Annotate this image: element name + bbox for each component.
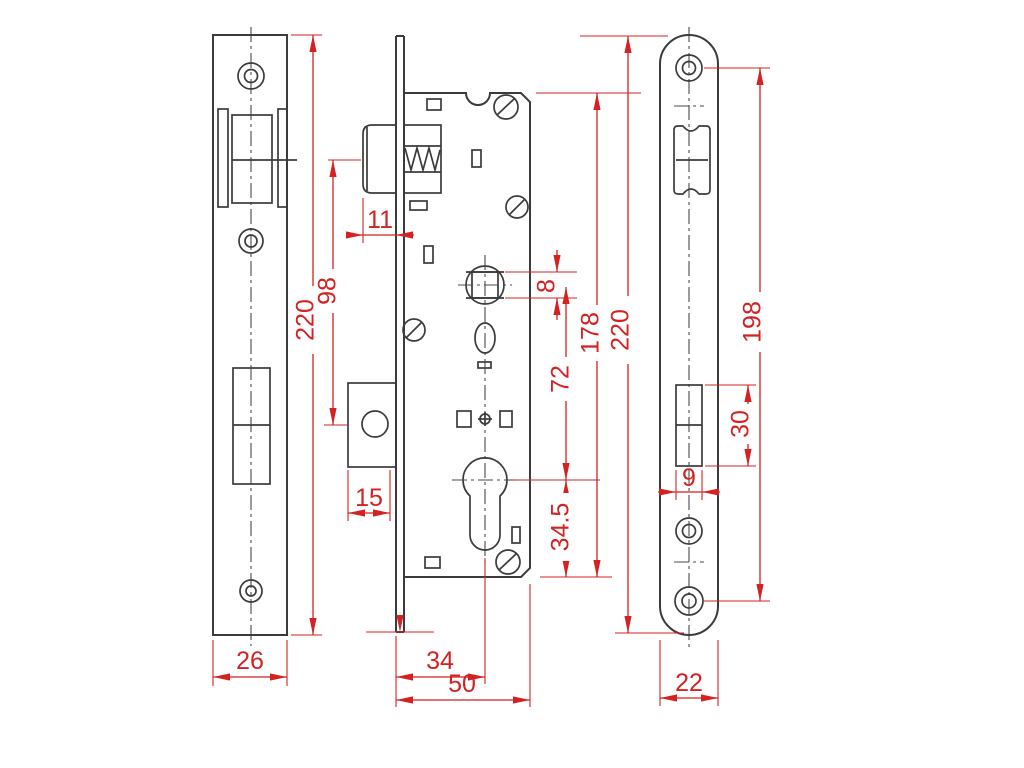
dim-label-34-5: 34.5 — [547, 503, 575, 552]
dim-label-198: 198 — [739, 301, 767, 343]
cutout-mid — [424, 246, 433, 263]
dim-depth: 50 — [396, 584, 530, 707]
dim-label-9: 9 — [682, 464, 696, 492]
dim-strike-height: 220 — [291, 35, 322, 635]
lock-technical-drawing: 220 26 98 — [0, 0, 1024, 768]
deadbolt-pin-hole — [362, 411, 388, 437]
left-notch — [218, 109, 228, 207]
case-screw-left — [403, 319, 425, 341]
cutout-center-right — [500, 411, 512, 427]
dim-label-11: 11 — [367, 206, 393, 234]
dim-screw-centers: 198 — [704, 68, 770, 601]
dim-label-8: 8 — [533, 279, 561, 293]
strike-plate-view — [213, 27, 297, 646]
case-screw-bottom — [496, 550, 520, 574]
dim-label-30: 30 — [727, 410, 755, 438]
case-screw-upper — [506, 196, 528, 218]
dim-cylinder-to-bottom: 34.5 — [540, 480, 612, 577]
cutout-bottom-left — [425, 557, 440, 568]
cutout-upper-mid — [472, 150, 481, 167]
cutout-lower-right — [512, 527, 520, 543]
latch-spring-housing — [404, 125, 441, 193]
case-screw-top — [494, 95, 518, 119]
dim-deadbolt-throw: 15 — [348, 470, 390, 521]
strike-plate-outline — [213, 35, 287, 635]
lock-body-view — [348, 36, 530, 632]
dim-label-15: 15 — [355, 484, 383, 512]
dim-bolt-cutout-height: 30 — [705, 385, 756, 466]
dim-latch-to-deadbolt: 98 — [314, 160, 361, 425]
dim-faceplate-width: 22 — [660, 640, 718, 706]
latch-cutout — [232, 115, 272, 203]
cutout-top — [427, 99, 441, 110]
dim-label-22: 22 — [675, 669, 703, 697]
cutout-center-left — [457, 411, 471, 427]
dimensions: 220 26 98 — [213, 35, 770, 707]
latch-spring — [405, 148, 440, 170]
dim-label-strike-width: 26 — [236, 647, 264, 675]
cutout-left — [410, 201, 427, 210]
latch-bolt — [363, 125, 396, 193]
pivot-hole — [478, 412, 492, 426]
dim-bolt-cutout-width: 9 — [658, 464, 720, 500]
drawing-canvas: 220 26 98 — [0, 0, 1024, 768]
dim-label-178: 178 — [577, 312, 605, 354]
right-notch — [278, 109, 287, 207]
dim-label-98: 98 — [314, 277, 342, 305]
dim-label-faceplate-height: 220 — [607, 309, 635, 351]
faceplate-view — [660, 27, 718, 648]
dim-label-72: 72 — [547, 365, 575, 393]
dim-label-50: 50 — [448, 670, 476, 698]
dim-strike-width: 26 — [213, 640, 287, 686]
